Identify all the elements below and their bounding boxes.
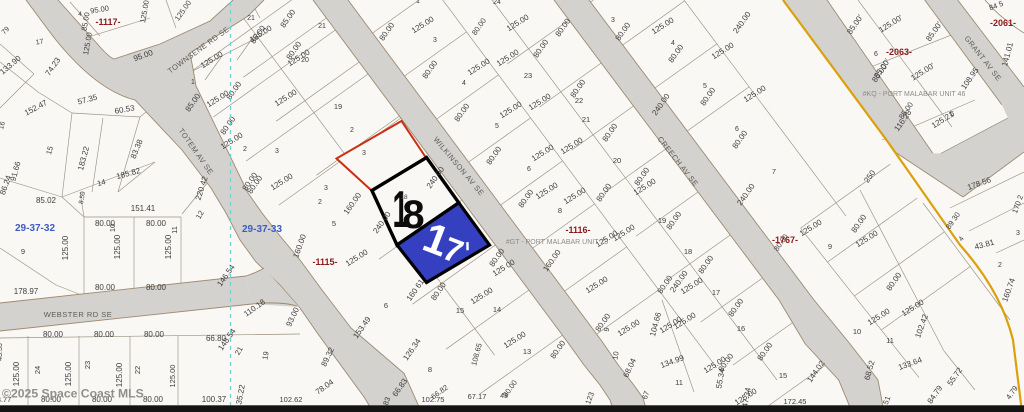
svg-text:18: 18 (400, 194, 408, 201)
svg-text:125.00: 125.00 (64, 361, 73, 386)
svg-text:21: 21 (582, 115, 590, 124)
svg-text:21: 21 (247, 15, 255, 22)
svg-text:85.02: 85.02 (36, 196, 57, 205)
svg-text:80.00: 80.00 (143, 395, 164, 404)
svg-text:100.37: 100.37 (202, 395, 227, 404)
svg-text:6: 6 (527, 166, 531, 173)
svg-text:24: 24 (493, 0, 501, 6)
svg-text:3: 3 (433, 37, 437, 44)
svg-text:10: 10 (610, 351, 620, 361)
svg-text:4: 4 (671, 40, 675, 47)
svg-text:10: 10 (108, 224, 117, 232)
svg-text:80.00: 80.00 (146, 283, 167, 292)
svg-text:125.00: 125.00 (164, 234, 173, 259)
svg-text:102.75: 102.75 (422, 395, 445, 404)
svg-text:-1115-: -1115- (312, 257, 337, 267)
svg-text:7: 7 (772, 167, 776, 176)
svg-text:2: 2 (350, 127, 354, 134)
svg-text:21: 21 (318, 23, 326, 30)
svg-text:2: 2 (998, 262, 1002, 269)
svg-text:9: 9 (21, 247, 25, 256)
svg-text:3: 3 (1016, 230, 1020, 237)
svg-text:8: 8 (558, 206, 562, 215)
svg-text:-1117-: -1117- (95, 17, 120, 27)
svg-text:3: 3 (324, 185, 328, 192)
svg-text:18: 18 (684, 247, 692, 256)
svg-text:125.00: 125.00 (113, 234, 122, 259)
svg-text:19: 19 (334, 102, 342, 111)
svg-text:23: 23 (524, 71, 532, 80)
svg-text:172.45: 172.45 (784, 397, 807, 406)
svg-text:23: 23 (83, 361, 92, 369)
svg-text:15: 15 (456, 306, 464, 315)
svg-text:20: 20 (613, 156, 621, 165)
svg-text:1: 1 (416, 0, 420, 5)
svg-text:6: 6 (384, 301, 388, 310)
svg-text:16: 16 (737, 324, 745, 333)
svg-text:11: 11 (675, 378, 683, 387)
svg-text:3: 3 (362, 150, 366, 157)
svg-text:178.97: 178.97 (14, 287, 39, 296)
svg-text:24: 24 (33, 366, 42, 374)
svg-text:80.00: 80.00 (95, 283, 116, 292)
svg-text:6: 6 (874, 51, 878, 58)
svg-text:19: 19 (658, 216, 666, 225)
svg-text:3: 3 (611, 17, 615, 24)
svg-text:-1767-: -1767- (772, 235, 798, 245)
svg-text:5: 5 (703, 83, 707, 90)
svg-text:125.00: 125.00 (61, 235, 70, 260)
svg-text:-2063-: -2063- (886, 47, 912, 57)
svg-text:5: 5 (332, 219, 336, 228)
svg-text:©2025 Space Coast MLS: ©2025 Space Coast MLS (2, 387, 144, 401)
svg-text:151.41: 151.41 (131, 204, 156, 213)
svg-text:-1116-: -1116- (565, 225, 590, 235)
svg-text:8: 8 (428, 365, 432, 374)
svg-text:80.00: 80.00 (43, 330, 64, 339)
svg-text:43: 43 (500, 393, 508, 400)
svg-text:67.17: 67.17 (468, 392, 487, 401)
svg-text:125.00: 125.00 (12, 361, 21, 386)
svg-text:14: 14 (493, 305, 501, 314)
svg-text:13: 13 (523, 347, 531, 356)
svg-text:43.33: 43.33 (0, 343, 4, 361)
svg-text:80.00: 80.00 (94, 330, 115, 339)
svg-text:11: 11 (170, 226, 179, 234)
svg-text:5: 5 (495, 123, 499, 130)
svg-text:2: 2 (243, 146, 247, 153)
svg-text:#KQ - PORT MALABAR UNIT 46: #KQ - PORT MALABAR UNIT 46 (863, 91, 966, 98)
svg-text:20: 20 (301, 57, 309, 64)
svg-text:15: 15 (779, 371, 787, 380)
svg-text:29-37-32: 29-37-32 (15, 223, 55, 234)
svg-text:17: 17 (712, 288, 720, 297)
svg-text:2: 2 (318, 199, 322, 206)
svg-text:125.00: 125.00 (168, 365, 177, 388)
svg-text:11: 11 (886, 336, 894, 345)
svg-text:1: 1 (191, 79, 195, 86)
svg-text:19: 19 (260, 351, 270, 361)
svg-text:80.00: 80.00 (146, 219, 167, 228)
svg-text:29-37-33: 29-37-33 (242, 224, 282, 235)
svg-text:17: 17 (35, 38, 44, 46)
svg-text:#GT - PORT MALABAR UNIT 23: #GT - PORT MALABAR UNIT 23 (506, 239, 608, 246)
svg-text:22: 22 (133, 366, 142, 374)
svg-text:125.00: 125.00 (115, 362, 124, 387)
svg-text:-2061-: -2061- (990, 18, 1016, 28)
svg-text:3: 3 (275, 148, 279, 155)
svg-text:6: 6 (735, 126, 739, 133)
svg-text:102.62: 102.62 (280, 395, 303, 404)
svg-text:10: 10 (853, 327, 861, 336)
svg-text:9: 9 (828, 242, 832, 251)
svg-text:WEBSTER RD SE: WEBSTER RD SE (44, 310, 113, 319)
svg-text:4: 4 (462, 80, 466, 87)
svg-text:80.00: 80.00 (144, 330, 165, 339)
